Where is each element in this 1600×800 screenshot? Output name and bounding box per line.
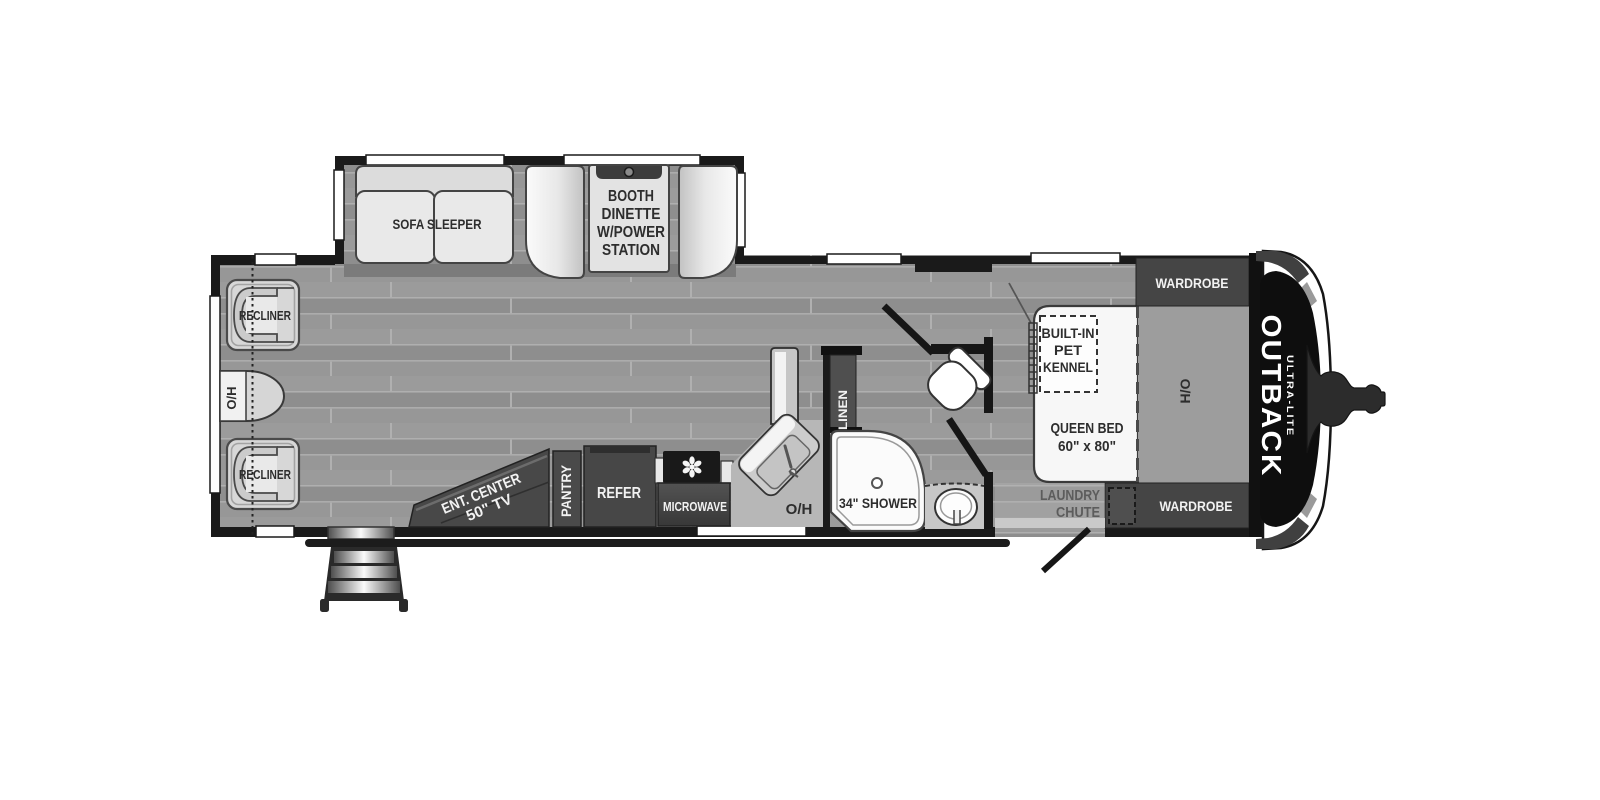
svg-text:QUEEN BED: QUEEN BED: [1051, 420, 1124, 437]
svg-text:BOOTH: BOOTH: [608, 188, 654, 205]
svg-text:34" SHOWER: 34" SHOWER: [839, 496, 917, 511]
svg-text:RECLINER: RECLINER: [239, 308, 291, 323]
svg-text:WARDROBE: WARDROBE: [1160, 499, 1233, 514]
svg-text:LINEN: LINEN: [836, 390, 850, 430]
svg-text:SOFA SLEEPER: SOFA SLEEPER: [393, 216, 482, 232]
svg-text:STATION: STATION: [602, 242, 660, 259]
svg-text:WARDROBE: WARDROBE: [1156, 276, 1229, 291]
svg-text:H/O: H/O: [1177, 378, 1193, 403]
svg-text:PANTRY: PANTRY: [558, 464, 574, 517]
svg-text:DINETTE: DINETTE: [602, 206, 661, 223]
svg-text:RECLINER: RECLINER: [239, 467, 291, 482]
svg-text:PET: PET: [1054, 343, 1083, 358]
svg-text:O/H: O/H: [224, 386, 239, 409]
svg-text:O/H: O/H: [786, 501, 813, 518]
svg-text:MICROWAVE: MICROWAVE: [663, 500, 727, 514]
svg-text:W/POWER: W/POWER: [597, 224, 665, 241]
svg-text:60" x 80": 60" x 80": [1058, 438, 1116, 455]
svg-text:OUTBACK: OUTBACK: [1256, 315, 1287, 478]
svg-text:ULTRA-LITE: ULTRA-LITE: [1285, 355, 1295, 437]
svg-text:REFER: REFER: [597, 485, 641, 502]
svg-text:KENNEL: KENNEL: [1043, 360, 1093, 375]
svg-text:BUILT-IN: BUILT-IN: [1042, 326, 1095, 341]
